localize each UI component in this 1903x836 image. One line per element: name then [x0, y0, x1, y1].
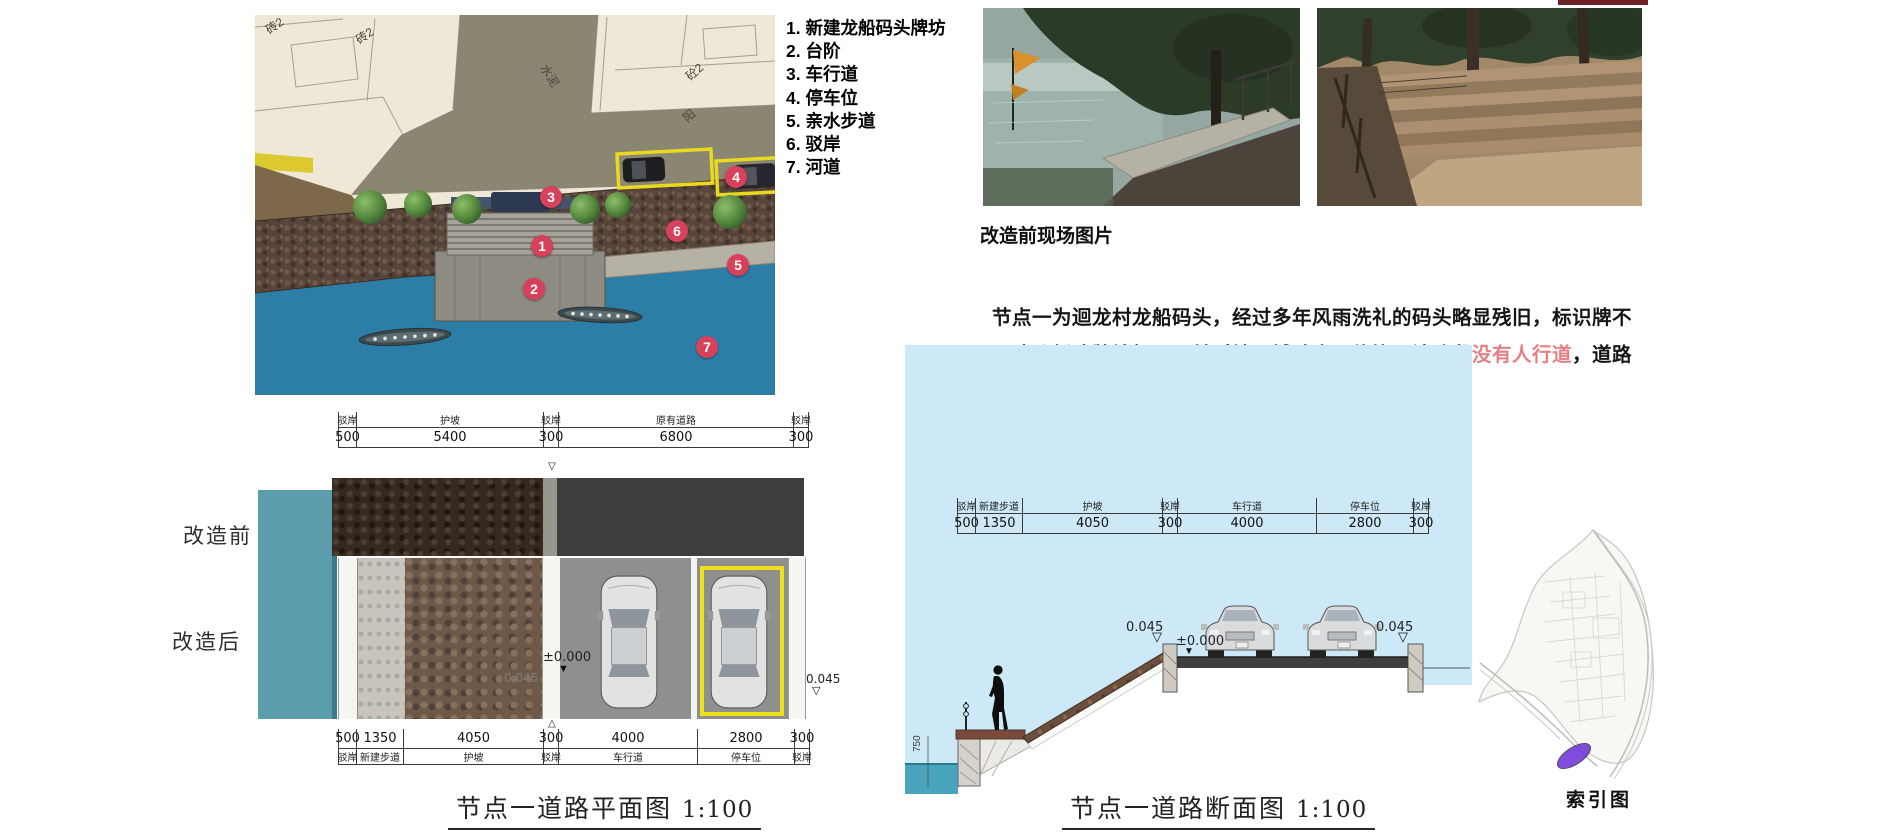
index-map-boundary [1479, 530, 1653, 763]
wall-height-dim: 750 [912, 735, 923, 752]
dim-segment: 2800停车位 [697, 729, 794, 765]
dim-segment: 4000车行道 [558, 729, 697, 765]
dim-segment: 4050护坡 [403, 729, 543, 765]
plan-level-left: 0.045 [504, 671, 538, 685]
plan-after-bulkhead-right [788, 558, 806, 719]
dim-segment: 驳岸500 [957, 498, 975, 534]
dim-segment: 驳岸300 [1162, 498, 1177, 534]
plan-before-road [557, 478, 804, 556]
dim-segment: 驳岸300 [1413, 498, 1429, 534]
site-plan-area-label: 水泥 [536, 61, 563, 90]
section-road-deck [1177, 657, 1408, 668]
car-top-view-1 [598, 574, 660, 710]
index-map-caption: 索引图 [1566, 785, 1632, 812]
legend-item: 1. 新建龙船码头牌坊 [786, 17, 945, 40]
legend-item: 2. 台阶 [786, 40, 945, 63]
row-label-before: 改造前 [183, 520, 252, 550]
plan-caption-text: 节点一道路平面图 [456, 794, 672, 823]
plan-before-slope [332, 478, 543, 556]
level-arrow-filled: ▼ [558, 664, 569, 675]
dim-segment: 停车位2800 [1316, 498, 1413, 534]
photo2-scene [1317, 8, 1642, 206]
section-caption-text: 节点一道路断面图 [1070, 794, 1286, 823]
section-water [905, 764, 958, 794]
legend-item: 3. 车行道 [786, 63, 945, 86]
plan-level-right: 0.045 [806, 672, 840, 686]
section-drawing: 750 [900, 340, 1480, 800]
dim-segment: 驳岸300 [543, 412, 558, 448]
page-header-bar-fragment [1558, 0, 1648, 5]
plan-marker: 6 [666, 220, 688, 242]
highlight-text: 没有人行道 [1472, 344, 1572, 366]
section-caption-scale: 1:100 [1296, 797, 1367, 823]
dim-segment: 护坡4050 [1022, 498, 1162, 534]
section-dim: 驳岸500新建步道1350护坡4050驳岸300车行道4000停车位2800驳岸… [957, 498, 1429, 534]
dim-segment: 500驳岸 [338, 729, 356, 765]
plan-marker: 2 [523, 278, 545, 300]
level-arrow-open: ▽ [812, 686, 820, 697]
legend-item: 5. 亲水步道 [786, 110, 945, 133]
dim-segment: 300驳岸 [794, 729, 810, 765]
legend-item: 6. 驳岸 [786, 133, 945, 156]
dim-segment: 1350新建步道 [356, 729, 403, 765]
legend-item: 7. 河道 [786, 156, 945, 179]
plan-caption-scale: 1:100 [682, 797, 753, 823]
section-level-left-arrow: ▽ [1152, 631, 1162, 642]
photos-caption: 改造前现场图片 [980, 221, 1113, 248]
plan-marker: 7 [696, 336, 718, 358]
photo-before-2 [1317, 8, 1642, 206]
site-plan-area-label: 砖2 [262, 15, 287, 38]
plan-marker: 3 [540, 186, 562, 208]
photo1-scene [983, 8, 1300, 206]
section-wall-right [1408, 644, 1423, 692]
page: 1234567砖2砖2水泥砼2阳 1. 新建龙船码头牌坊2. 台阶3. 车行道4… [0, 0, 1903, 836]
section-cut-arrow-bottom: ▽ [548, 718, 556, 729]
plan-marker: 1 [531, 235, 553, 257]
section-caption: 节点一道路断面图 1:100 [1062, 789, 1375, 830]
plan-after-slope [405, 558, 542, 719]
plan-water-strip [258, 490, 337, 719]
dim-segment: 车行道4000 [1177, 498, 1316, 534]
dim-segment: 护坡5400 [356, 412, 543, 448]
site-plan-area-label: 砖2 [352, 23, 377, 48]
plan-marker: 5 [727, 254, 749, 276]
section-cut-arrow-top: ▽ [548, 461, 556, 472]
site-plan-image: 1234567砖2砖2水泥砼2阳 [255, 15, 775, 395]
index-map [1475, 522, 1685, 790]
dim-segment: 原有道路6800 [558, 412, 793, 448]
plan-after-bulkhead-left [338, 558, 359, 719]
plan-after-walkway [357, 558, 407, 719]
photo-before-1 [983, 8, 1300, 206]
plan-dim-top: 驳岸500护坡5400驳岸300原有道路6800驳岸300 [338, 412, 809, 448]
plan-before-bulkhead [543, 478, 557, 556]
section-level-right-arrow: ▽ [1398, 631, 1408, 642]
dim-segment: 驳岸500 [338, 412, 356, 448]
site-plan-area-label: 阳 [679, 105, 699, 126]
row-label-after: 改造后 [172, 626, 241, 656]
dim-segment: 300驳岸 [543, 729, 558, 765]
site-plan-area-label: 砼2 [682, 59, 707, 84]
legend-list: 1. 新建龙船码头牌坊2. 台阶3. 车行道4. 停车位5. 亲水步道6. 驳岸… [786, 17, 945, 179]
plan-after-bulkhead-mid [542, 558, 562, 719]
section-level-zero-arrow: ▼ [1184, 646, 1194, 657]
car-top-view-2 [708, 574, 770, 710]
section-sky [905, 345, 1472, 768]
dim-segment: 驳岸300 [793, 412, 809, 448]
plan-caption: 节点一道路平面图 1:100 [448, 789, 761, 830]
site-plan-markers: 1234567砖2砖2水泥砼2阳 [255, 15, 775, 395]
plan-marker: 4 [725, 166, 747, 188]
legend-item: 4. 停车位 [786, 87, 945, 110]
section-wall-left [1163, 644, 1177, 692]
dim-segment: 新建步道1350 [975, 498, 1022, 534]
index-map-node-highlight [1553, 739, 1594, 774]
section-walkway-deck [956, 730, 1025, 739]
plan-dim-bottom: 500驳岸1350新建步道4050护坡300驳岸4000车行道2800停车位30… [338, 729, 810, 765]
